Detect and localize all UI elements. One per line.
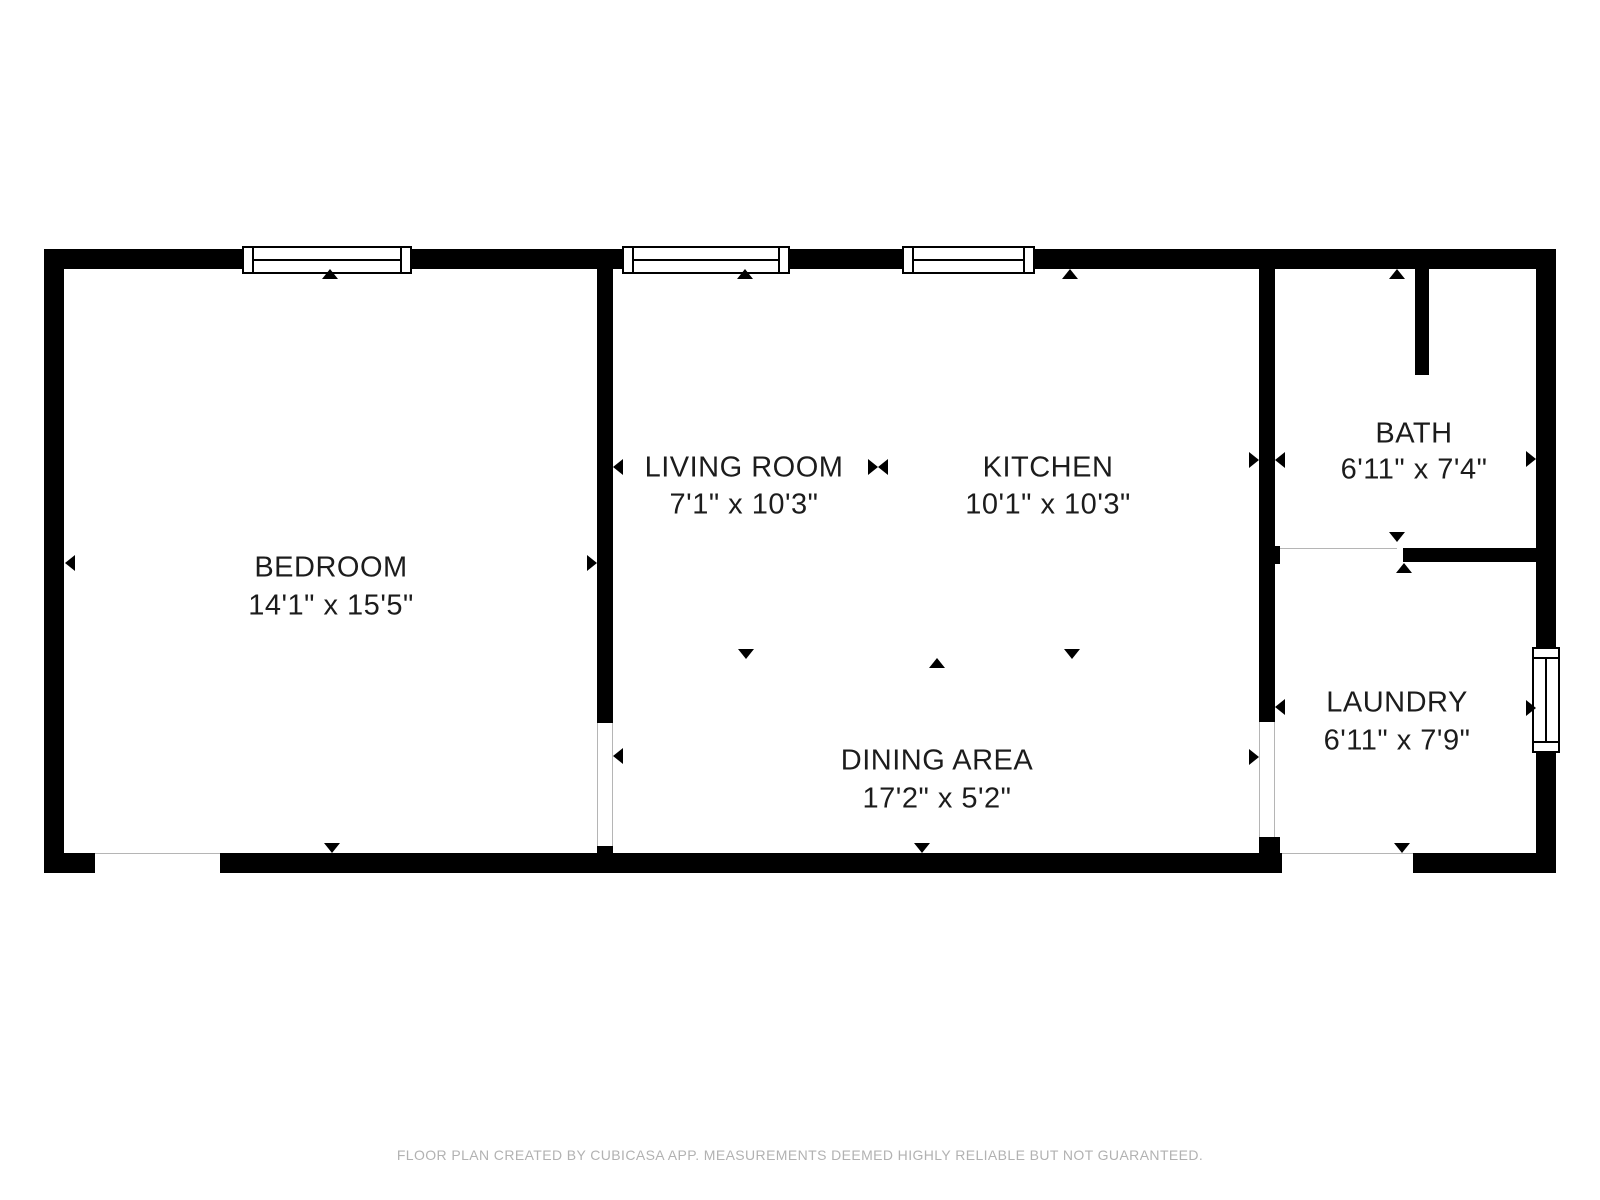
room-label-dining-area: DINING AREA xyxy=(841,745,1033,778)
wall-exterior-left xyxy=(44,249,64,873)
bedroom-arrow-right-icon xyxy=(587,555,597,571)
floor-plan: BEDROOM 14'1" x 15'5" LIVING ROOM 7'1" x… xyxy=(0,0,1600,1200)
laundry-arrow-left-icon xyxy=(1275,699,1285,715)
window-pane-icon xyxy=(1545,659,1547,741)
laundry-arrow-down-icon xyxy=(1394,843,1410,853)
door-line-laundry-exterior xyxy=(1282,853,1413,854)
wall-bath-entry-stub xyxy=(1415,269,1429,375)
kitchen-arrow-up-icon xyxy=(1062,269,1078,279)
laundry-arrow-right-icon xyxy=(1526,700,1536,716)
dining-door-arrow-right-icon xyxy=(1249,749,1259,765)
bedroom-arrow-up-icon xyxy=(322,269,338,279)
door-line-laundry-left xyxy=(1259,722,1260,837)
laundry-arrow-up-icon xyxy=(1396,563,1412,573)
window-pane-icon xyxy=(634,259,778,261)
bath-arrow-up-icon xyxy=(1389,269,1405,279)
room-dims-bedroom: 14'1" x 15'5" xyxy=(248,590,414,623)
bath-door-arrow-down-icon xyxy=(1389,532,1405,542)
living-kitchen-boundary-arrow-right-icon xyxy=(868,459,878,475)
door-line-bedroom-left xyxy=(597,723,598,846)
wall-bath-laundry xyxy=(1403,548,1536,562)
door-opening-laundry-exterior xyxy=(1282,853,1413,873)
bedroom-arrow-left-icon xyxy=(65,555,75,571)
room-dims-living-room: 7'1" x 10'3" xyxy=(670,489,819,522)
window-cap-icon xyxy=(1023,248,1025,272)
door-line-bath xyxy=(1280,548,1397,549)
wall-bedroom-living xyxy=(597,269,613,723)
kitchen-arrow-right-icon xyxy=(1249,452,1259,468)
window-cap-icon xyxy=(400,248,402,272)
footer-disclaimer: FLOOR PLAN CREATED BY CUBICASA APP. MEAS… xyxy=(0,1144,1600,1166)
room-label-bedroom: BEDROOM xyxy=(254,552,407,585)
living-room-arrow-left-icon xyxy=(613,459,623,475)
bath-arrow-right-icon xyxy=(1526,451,1536,467)
dining-arrow-down-left-icon xyxy=(738,649,754,659)
window-kitchen xyxy=(902,246,1035,274)
room-dims-bath: 6'11" x 7'4" xyxy=(1341,454,1488,487)
bath-arrow-left-icon xyxy=(1275,452,1285,468)
window-pane-icon xyxy=(914,259,1023,261)
wall-bedroom-living-stub xyxy=(597,846,613,873)
window-laundry xyxy=(1532,647,1560,753)
dining-arrow-up-icon xyxy=(929,658,945,668)
dining-arrow-bottom-icon xyxy=(914,843,930,853)
room-label-bath: BATH xyxy=(1375,418,1452,451)
door-line-bedroom-right xyxy=(612,723,613,846)
room-dims-dining-area: 17'2" x 5'2" xyxy=(863,783,1012,816)
room-label-laundry: LAUNDRY xyxy=(1326,687,1468,720)
window-pane-icon xyxy=(254,259,400,261)
bedroom-arrow-down-icon xyxy=(324,843,340,853)
dining-door-arrow-left-icon xyxy=(613,748,623,764)
window-cap-icon xyxy=(778,248,780,272)
door-line-laundry-right xyxy=(1274,722,1275,837)
window-living-room xyxy=(622,246,790,274)
dining-arrow-down-right-icon xyxy=(1064,649,1080,659)
door-line-bedroom-exterior xyxy=(95,853,220,854)
wall-kitchen-bath xyxy=(1259,269,1275,722)
room-label-kitchen: KITCHEN xyxy=(983,452,1114,485)
window-cap-icon xyxy=(1534,741,1558,743)
wall-kitchen-bath-stub xyxy=(1259,837,1280,873)
room-label-living-room: LIVING ROOM xyxy=(645,452,844,485)
room-dims-laundry: 6'11" x 7'9" xyxy=(1324,725,1471,758)
living-room-arrow-up-icon xyxy=(737,269,753,279)
living-kitchen-boundary-arrow-left-icon xyxy=(878,459,888,475)
wall-exterior-right xyxy=(1536,249,1556,873)
room-dims-kitchen: 10'1" x 10'3" xyxy=(965,489,1131,522)
door-opening-bedroom-exterior xyxy=(95,853,220,873)
